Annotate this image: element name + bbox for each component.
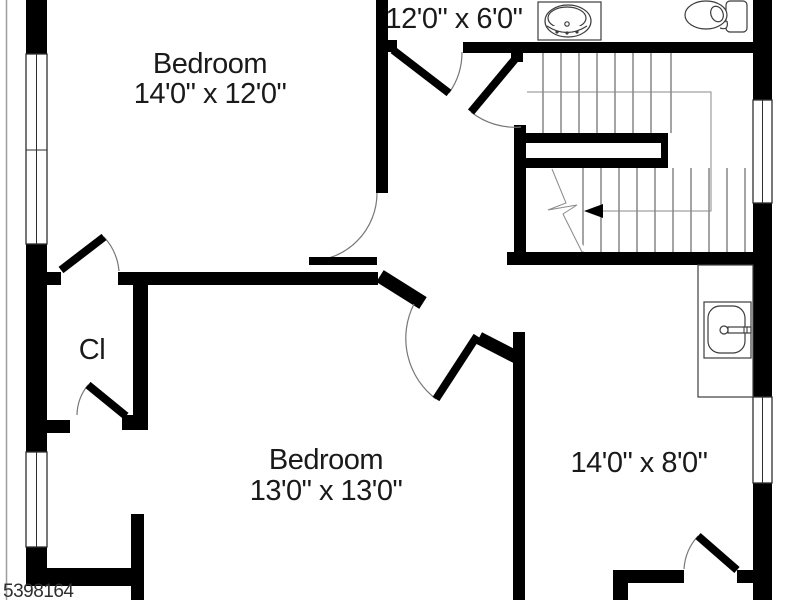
door-bedroom2	[406, 304, 477, 399]
wall-flex-south-return	[613, 570, 628, 600]
watermark: 5398164	[3, 581, 73, 600]
stairs-direction-arrow-icon	[584, 204, 603, 218]
wall-hall-angled-east	[479, 338, 516, 357]
wall-right-bottom	[753, 483, 772, 600]
wall-bedroom1-south-a	[43, 272, 61, 285]
vanity-sink-icon	[698, 265, 753, 397]
room-name: Bedroom	[60, 49, 360, 79]
wall-left-top	[26, 0, 47, 54]
room-label-bedroom2: Bedroom 13'0" x 13'0"	[176, 445, 476, 507]
floor-plan: Bedroom 14'0" x 12'0" 12'0" x 6'0" Cl Be…	[0, 0, 800, 600]
door-bedroom1-closet-area	[61, 237, 119, 271]
room-dimensions: 14'0" x 8'0"	[514, 448, 764, 478]
wall-hall-angled-west	[380, 276, 423, 303]
room-dimensions: 12'0" x 6'0"	[329, 4, 579, 34]
stair-railing-core	[525, 143, 661, 158]
door-bathroom	[393, 50, 462, 93]
room-label-flex-room: 14'0" x 8'0"	[514, 448, 764, 478]
staircase	[514, 53, 745, 252]
room-name: Cl	[42, 335, 142, 365]
wall-right-middle	[753, 203, 772, 397]
wall-bottom-left-return	[131, 514, 144, 600]
toilet-icon	[685, 1, 747, 32]
room-label-closet: Cl	[42, 335, 142, 365]
wall-stairs-west	[514, 125, 526, 265]
room-label-bedroom1: Bedroom 14'0" x 12'0"	[60, 49, 360, 109]
window-right-upper	[753, 100, 772, 203]
room-dimensions: 13'0" x 13'0"	[176, 476, 476, 507]
wall-closet-south-a	[43, 420, 70, 433]
door-bedroom1-hall	[309, 193, 377, 261]
door-flex-room	[684, 536, 737, 570]
wall-flex-door-jamb	[737, 570, 753, 583]
stair-treads-upper	[543, 53, 671, 133]
wall-bedroom1-south-b	[118, 272, 378, 285]
wall-bathroom-south	[463, 42, 755, 53]
wall-right-top	[753, 0, 772, 100]
room-dimensions: 14'0" x 12'0"	[60, 79, 360, 109]
room-name: Bedroom	[176, 445, 476, 476]
stair-treads-lower	[583, 168, 745, 252]
wall-closet-south-b	[122, 415, 148, 430]
room-label-bathroom: 12'0" x 6'0"	[329, 4, 579, 34]
window-left-upper	[26, 54, 47, 244]
door-closet	[77, 385, 126, 416]
wall-stairs-south	[507, 252, 755, 265]
stairs-break-mask	[548, 169, 582, 252]
window-left-lower	[26, 452, 47, 547]
door-stair-hall	[471, 58, 521, 127]
